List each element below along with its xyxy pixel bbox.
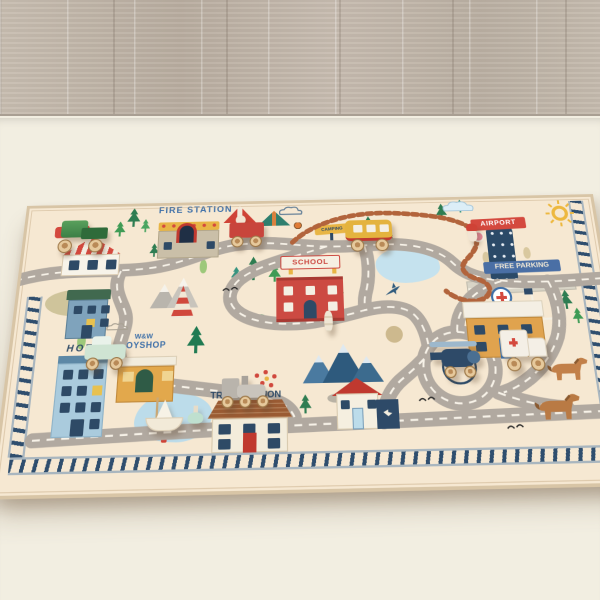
cloud-icon [438,199,479,213]
fire-station-building [155,216,222,259]
toy-wheel [57,239,73,253]
horse-icon [527,389,588,427]
house-building [327,377,400,432]
bird-icon [505,421,526,431]
lit-windows [92,385,103,395]
door [69,419,84,436]
toy-navy-helicopter [425,339,494,383]
toy-yellow-bus [341,214,398,251]
free-parking-label: FREE PARKING [494,262,549,271]
toy-wheel [506,357,522,371]
door [135,369,154,392]
building-body [336,393,380,430]
toy-peg-figure [462,221,480,242]
door [352,408,364,430]
roof [462,300,544,318]
school-sign-label: SCHOOL [292,257,328,267]
toy-peg-body [324,311,333,332]
toy-sailboat [140,397,189,439]
cloud-icon [276,205,306,217]
toy-cockpit [467,350,481,363]
toy-wheel [231,236,243,248]
sun-icon [543,199,577,227]
windows [218,424,231,435]
toy-sail [157,399,173,417]
toy-wheel [239,396,251,409]
toy-top-dome [187,412,203,424]
toy-peg-figure [321,307,337,336]
bird-icon [418,394,436,403]
toy-spinning-top [185,405,206,428]
windows [474,325,486,335]
bird-icon [222,284,239,292]
toy-wheel [464,366,477,378]
toy-wheel [351,239,365,252]
bird-icon [383,409,392,416]
toy-bed [81,227,108,239]
school-sign: SCHOOL [280,255,340,270]
toy-wheel [250,235,262,247]
road-play-rug: FUEL FIRE STATION 30 CAMPING SCHOOL AIRP… [0,194,600,500]
toy-wheel [375,238,389,251]
toy-wheel [444,366,457,378]
windows [68,260,79,270]
toy-windows [353,225,362,233]
windows [284,286,294,295]
toy-cap [466,223,478,231]
building-body [50,363,107,439]
windows [73,306,82,314]
airport-sign-label: AIRPORT [480,219,516,227]
toy-white-ambulance [494,323,554,373]
toy-cab [527,337,548,357]
windows [163,242,172,250]
building-body [211,417,288,453]
wood-floor [0,0,600,116]
toy-hull [145,417,184,431]
toy-wheel [109,357,123,370]
toy-mint-car [79,334,131,371]
toy-green-car [48,214,113,255]
garage-door [176,223,197,243]
windows [341,400,350,409]
door [243,433,257,453]
toy-rotor [429,341,477,347]
shed [376,399,400,429]
house-building [62,289,111,339]
door [304,300,317,319]
toy-body [345,220,393,242]
toy-red-wagon [223,213,270,248]
toy-wheel [88,239,103,253]
red-cross-icon [507,337,519,348]
toy-wheel [85,357,99,370]
toy-wheel [530,357,546,371]
toy-wheel [221,396,233,409]
toy-gray-train [215,371,275,412]
windows [63,370,74,380]
building-body [61,254,121,277]
building-body [65,299,109,339]
windows [122,372,134,382]
toy-wheel [257,395,269,408]
photo-scene: FUEL FIRE STATION 30 CAMPING SCHOOL AIRP… [0,0,600,600]
